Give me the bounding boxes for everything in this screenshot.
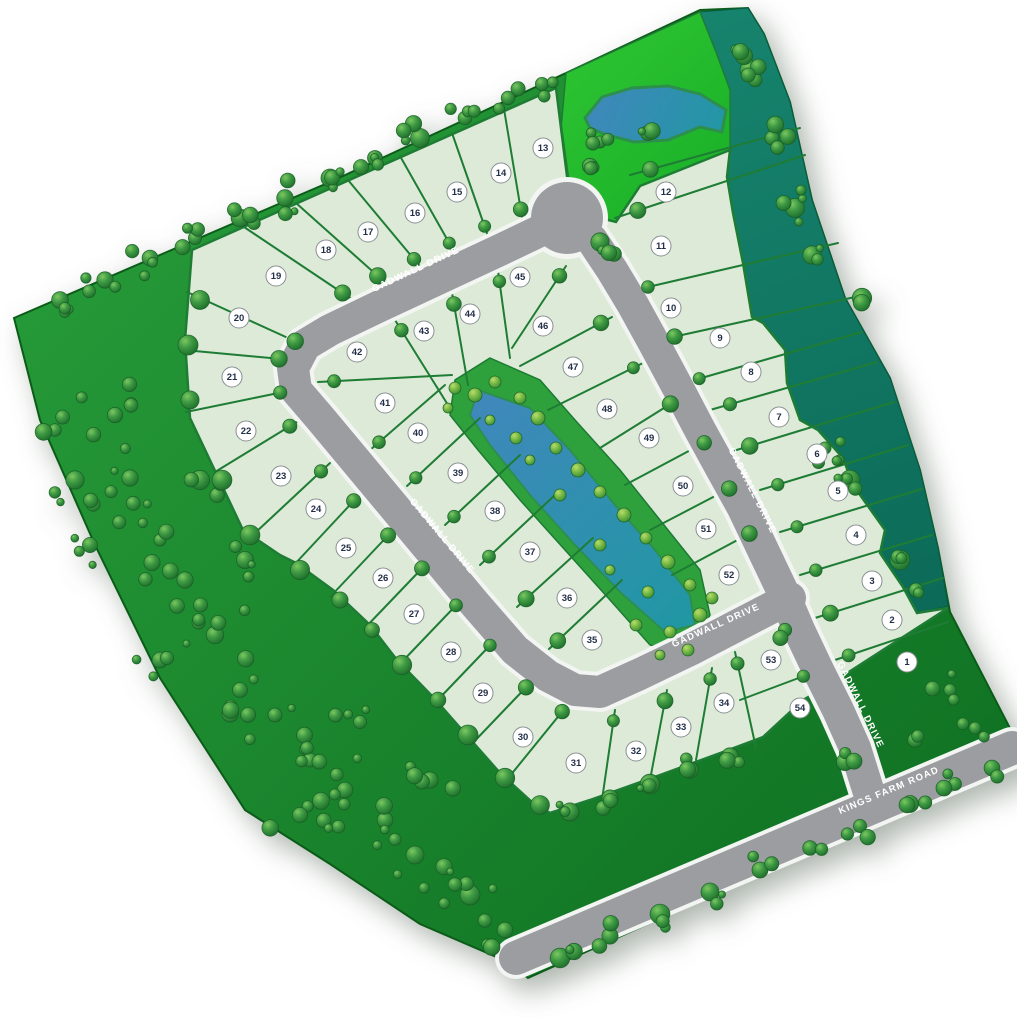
tree-icon (772, 478, 784, 490)
tree-icon (592, 939, 607, 954)
tree-icon (407, 768, 423, 784)
tree-icon (538, 90, 550, 102)
tree-icon (535, 77, 548, 90)
lot-number: 30 (518, 732, 529, 743)
lot-33-badge[interactable]: 33 (671, 717, 691, 737)
tree-icon (497, 922, 513, 938)
tree-icon (627, 362, 639, 374)
tree-icon (184, 472, 199, 487)
lot-25-badge[interactable]: 25 (336, 538, 356, 558)
tree-icon (637, 785, 644, 792)
tree-icon (643, 162, 659, 178)
tree-icon (448, 510, 461, 523)
tree-icon (853, 294, 870, 311)
lot-29-badge[interactable]: 29 (473, 683, 493, 703)
tree-icon (925, 681, 940, 696)
lot-4-badge[interactable]: 4 (846, 525, 866, 545)
tree-icon (376, 798, 393, 815)
lot-number: 25 (341, 543, 352, 554)
tree-icon (765, 857, 779, 871)
tree-icon (344, 710, 353, 719)
tree-icon (35, 424, 52, 441)
lot-16-badge[interactable]: 16 (405, 203, 425, 223)
tree-icon (329, 789, 340, 800)
tree-icon (140, 271, 150, 281)
tree-icon (328, 375, 341, 388)
tree-icon (245, 734, 256, 745)
lot-40-badge[interactable]: 40 (408, 423, 428, 443)
lot-number: 43 (419, 326, 430, 337)
tree-icon (556, 801, 563, 808)
tree-icon (630, 202, 646, 218)
lot-46-badge[interactable]: 46 (533, 316, 553, 336)
tree-icon (731, 657, 744, 670)
tree-icon (723, 398, 736, 411)
tree-icon (84, 493, 98, 507)
tree-icon (605, 565, 615, 575)
tree-icon (193, 598, 207, 612)
tree-icon (191, 291, 210, 310)
tree-icon (238, 651, 254, 667)
tree-icon (525, 455, 535, 465)
lot-number: 52 (724, 570, 735, 581)
tree-icon (373, 436, 386, 449)
tree-icon (162, 563, 178, 579)
tree-icon (227, 203, 241, 217)
lot-31-badge[interactable]: 31 (566, 753, 586, 773)
tree-icon (178, 335, 198, 355)
lot-53-badge[interactable]: 53 (761, 650, 781, 670)
tree-icon (336, 168, 344, 176)
tree-icon (812, 254, 824, 266)
tree-icon (741, 438, 758, 455)
lot-number: 10 (666, 303, 677, 314)
tree-icon (832, 456, 842, 466)
tree-icon (816, 245, 823, 252)
lot-number: 5 (835, 486, 841, 497)
tree-icon (810, 564, 823, 577)
tree-icon (458, 725, 478, 745)
lot-1-badge[interactable]: 1 (897, 652, 917, 672)
tree-icon (183, 640, 190, 647)
tree-icon (684, 579, 696, 591)
tree-icon (81, 273, 91, 283)
lot-32-badge[interactable]: 32 (626, 741, 646, 761)
tree-icon (110, 281, 121, 292)
tree-icon (262, 820, 279, 837)
tree-icon (249, 675, 258, 684)
tree-icon (489, 376, 501, 388)
tree-icon (353, 715, 366, 728)
tree-icon (706, 592, 718, 604)
tree-icon (83, 285, 96, 298)
lot-51-badge[interactable]: 51 (696, 519, 716, 539)
tree-icon (741, 68, 755, 82)
tree-icon (479, 220, 491, 232)
lot-2-badge[interactable]: 2 (882, 610, 902, 630)
tree-icon (89, 561, 96, 568)
lot-26-badge[interactable]: 26 (373, 568, 393, 588)
tree-icon (485, 415, 495, 425)
tree-icon (450, 599, 463, 612)
tree-icon (335, 285, 351, 301)
tree-icon (919, 796, 932, 809)
tree-icon (732, 44, 748, 60)
tree-icon (796, 185, 806, 195)
tree-icon (313, 792, 330, 809)
tree-icon (297, 727, 313, 743)
tree-icon (230, 541, 242, 553)
tree-icon (555, 704, 570, 719)
tree-icon (365, 623, 380, 638)
lot-47-badge[interactable]: 47 (563, 357, 583, 377)
tree-icon (642, 586, 654, 598)
tree-icon (380, 825, 389, 834)
lot-number: 8 (748, 367, 753, 378)
tree-icon (181, 391, 199, 409)
tree-icon (571, 463, 585, 477)
lot-43-badge[interactable]: 43 (414, 321, 434, 341)
tree-icon (76, 392, 87, 403)
tree-icon (274, 386, 287, 399)
lot-52-badge[interactable]: 52 (719, 565, 739, 585)
tree-icon (395, 323, 409, 337)
lot-38-badge[interactable]: 38 (485, 501, 505, 521)
tree-icon (711, 897, 724, 910)
lot-number: 14 (496, 168, 507, 179)
lot-number: 26 (378, 573, 389, 584)
tree-icon (280, 173, 295, 188)
lot-21-badge[interactable]: 21 (222, 367, 242, 387)
lot-number: 12 (661, 187, 672, 198)
tree-icon (329, 708, 343, 722)
tree-icon (126, 496, 140, 510)
tree-icon (132, 655, 141, 664)
lot-39-badge[interactable]: 39 (448, 463, 468, 483)
lot-12-badge[interactable]: 12 (656, 182, 676, 202)
tree-icon (594, 486, 606, 498)
tree-icon (483, 550, 496, 563)
tree-icon (443, 403, 453, 413)
lot-number: 53 (766, 655, 777, 666)
tree-icon (693, 373, 705, 385)
lot-number: 34 (719, 698, 730, 709)
lot-14-badge[interactable]: 14 (491, 163, 511, 183)
lot-number: 48 (602, 404, 613, 415)
tree-icon (122, 470, 138, 486)
tree-icon (495, 768, 514, 787)
tree-icon (679, 761, 695, 777)
tree-icon (719, 752, 735, 768)
lot-number: 39 (453, 468, 464, 479)
tree-icon (513, 202, 528, 217)
lot-number: 40 (413, 428, 424, 439)
tree-icon (392, 655, 411, 674)
tree-icon (222, 702, 239, 719)
tree-icon (552, 269, 567, 284)
tree-icon (593, 315, 609, 331)
tree-icon (742, 526, 758, 542)
tree-icon (655, 650, 665, 660)
tree-icon (239, 605, 250, 616)
tree-icon (278, 207, 292, 221)
lot-number: 42 (352, 347, 363, 358)
tree-icon (449, 382, 461, 394)
site-plan-page: 1234567891011121314151617181920212223242… (0, 0, 1017, 1017)
lot-49-badge[interactable]: 49 (639, 428, 659, 448)
tree-icon (86, 427, 101, 442)
tree-icon (718, 891, 725, 898)
tree-icon (240, 525, 260, 545)
tree-icon (243, 571, 254, 582)
tree-icon (468, 388, 482, 402)
lot-27-badge[interactable]: 27 (404, 604, 424, 624)
tree-icon (531, 411, 545, 425)
tree-icon (332, 592, 348, 608)
tree-icon (603, 793, 617, 807)
tree-icon (721, 481, 737, 497)
tree-icon (913, 588, 923, 598)
tree-icon (148, 257, 158, 267)
lot-22-badge[interactable]: 22 (236, 421, 256, 441)
site-plan-map: 1234567891011121314151617181920212223242… (0, 0, 1017, 1017)
tree-icon (287, 333, 304, 350)
tree-icon (493, 275, 506, 288)
tree-icon (662, 396, 678, 412)
lot-number: 46 (538, 321, 549, 332)
tree-icon (49, 487, 61, 499)
tree-icon (406, 846, 424, 864)
tree-icon (704, 673, 717, 686)
tree-icon (330, 768, 343, 781)
lot-30-badge[interactable]: 30 (513, 727, 533, 747)
tree-icon (661, 555, 675, 569)
tree-icon (846, 753, 862, 769)
lot-number: 1 (904, 657, 910, 668)
tree-icon (271, 351, 288, 368)
tree-icon (445, 781, 461, 797)
tree-icon (241, 707, 256, 722)
lot-number: 36 (562, 593, 573, 604)
tree-icon (896, 553, 907, 564)
tree-icon (841, 828, 853, 840)
tree-icon (324, 824, 333, 833)
tree-icon (644, 123, 661, 140)
tree-icon (396, 123, 411, 138)
lot-19-badge[interactable]: 19 (266, 266, 286, 286)
lot-28-badge[interactable]: 28 (441, 642, 461, 662)
lot-number: 41 (380, 398, 391, 409)
tree-icon (314, 465, 327, 478)
tree-icon (107, 407, 122, 422)
lot-number: 29 (478, 688, 489, 699)
tree-icon (697, 436, 712, 451)
lot-number: 50 (678, 481, 689, 492)
lot-35-badge[interactable]: 35 (582, 630, 602, 650)
tree-icon (594, 539, 606, 551)
tree-icon (531, 796, 550, 815)
lot-number: 3 (869, 576, 874, 587)
lot-34-badge[interactable]: 34 (714, 693, 734, 713)
lot-20-badge[interactable]: 20 (229, 308, 249, 328)
lot-number: 49 (644, 433, 655, 444)
tree-icon (290, 560, 309, 579)
lot-number: 44 (465, 309, 476, 320)
lot-23-badge[interactable]: 23 (271, 466, 291, 486)
tree-icon (979, 731, 990, 742)
tree-icon (554, 489, 566, 501)
tree-icon (177, 572, 193, 588)
lot-44-badge[interactable]: 44 (460, 304, 480, 324)
tree-icon (139, 573, 153, 587)
tree-icon (430, 692, 446, 708)
tree-icon (373, 841, 382, 850)
tree-icon (566, 945, 574, 953)
tree-icon (124, 399, 138, 413)
lot-7-badge[interactable]: 7 (769, 407, 789, 427)
lot-number: 54 (795, 703, 806, 714)
lot-number: 7 (776, 412, 781, 423)
lot-number: 37 (525, 547, 536, 558)
lot-number: 23 (276, 471, 287, 482)
lot-48-badge[interactable]: 48 (597, 399, 617, 419)
tree-icon (767, 116, 784, 133)
tree-icon (656, 915, 669, 928)
tree-icon (550, 633, 566, 649)
tree-icon (59, 302, 71, 314)
tree-icon (489, 884, 497, 892)
lot-11-badge[interactable]: 11 (651, 236, 671, 256)
tree-icon (353, 754, 362, 763)
tree-icon (138, 518, 148, 528)
tree-icon (948, 670, 956, 678)
lot-number: 24 (311, 504, 322, 515)
lot-number: 45 (515, 272, 526, 283)
tree-icon (393, 870, 402, 879)
tree-icon (899, 797, 915, 813)
tree-icon (642, 281, 655, 294)
tree-icon (547, 77, 558, 88)
lot-41-badge[interactable]: 41 (375, 393, 395, 413)
lot-37-badge[interactable]: 37 (520, 542, 540, 562)
tree-icon (780, 129, 796, 145)
tree-icon (447, 868, 454, 875)
tree-icon (483, 939, 500, 956)
lot-54-badge[interactable]: 54 (790, 698, 810, 718)
tree-icon (584, 162, 597, 175)
tree-icon (912, 730, 924, 742)
tree-icon (301, 742, 314, 755)
tree-icon (484, 639, 497, 652)
tree-icon (586, 136, 600, 150)
lot-5-badge[interactable]: 5 (828, 481, 848, 501)
lot-13-badge[interactable]: 13 (533, 138, 553, 158)
lot-17-badge[interactable]: 17 (358, 222, 378, 242)
tree-icon (105, 486, 117, 498)
lot-number: 4 (853, 530, 859, 541)
tree-icon (518, 680, 533, 695)
lot-number: 28 (446, 647, 457, 658)
tree-icon (511, 82, 525, 96)
tree-icon (347, 494, 361, 508)
tree-icon (312, 754, 327, 769)
lot-number: 2 (889, 615, 894, 626)
lot-10-badge[interactable]: 10 (661, 298, 681, 318)
tree-icon (836, 437, 846, 447)
tree-icon (415, 561, 430, 576)
tree-icon (193, 614, 205, 626)
tree-icon (292, 807, 307, 822)
lot-15-badge[interactable]: 15 (447, 182, 467, 202)
lot-number: 31 (571, 758, 582, 769)
tree-icon (445, 103, 456, 114)
lot-9-badge[interactable]: 9 (710, 328, 730, 348)
tree-icon (122, 377, 136, 391)
lot-number: 51 (701, 524, 712, 535)
tree-icon (797, 670, 809, 682)
tree-icon (773, 630, 788, 645)
tree-icon (795, 218, 803, 226)
lot-36-badge[interactable]: 36 (557, 588, 577, 608)
tree-icon (242, 207, 258, 223)
lot-number: 35 (587, 635, 598, 646)
tree-icon (657, 693, 673, 709)
tree-icon (447, 297, 462, 312)
lot-8-badge[interactable]: 8 (741, 362, 761, 382)
tree-icon (630, 619, 642, 631)
tree-icon (248, 561, 255, 568)
tree-icon (550, 442, 562, 454)
lot-45-badge[interactable]: 45 (510, 267, 530, 287)
tree-icon (640, 532, 652, 544)
tree-icon (803, 841, 818, 856)
tree-icon (277, 190, 294, 207)
parcel: 1234567891011121314151617181920212223242… (14, 8, 1016, 978)
tree-icon (126, 244, 139, 257)
lot-number: 47 (568, 362, 579, 373)
lot-number: 33 (676, 722, 687, 733)
lot-number: 21 (227, 372, 238, 383)
tree-icon (268, 708, 282, 722)
tree-icon (212, 470, 232, 490)
lot-3-badge[interactable]: 3 (862, 571, 882, 591)
tree-icon (514, 392, 526, 404)
tree-icon (381, 528, 396, 543)
tree-icon (74, 546, 84, 556)
lot-6-badge[interactable]: 6 (807, 444, 827, 464)
tree-icon (57, 498, 65, 506)
lot-number: 15 (452, 187, 463, 198)
lot-50-badge[interactable]: 50 (673, 476, 693, 496)
tree-icon (332, 820, 345, 833)
tree-icon (448, 878, 462, 892)
tree-icon (113, 516, 126, 529)
tree-icon (353, 160, 368, 175)
lot-18-badge[interactable]: 18 (316, 240, 336, 260)
tree-icon (111, 467, 118, 474)
tree-icon (642, 779, 656, 793)
tree-icon (478, 914, 491, 927)
tree-icon (518, 591, 534, 607)
lot-24-badge[interactable]: 24 (306, 499, 326, 519)
tree-icon (815, 843, 827, 855)
tree-icon (439, 898, 450, 909)
lot-42-badge[interactable]: 42 (347, 342, 367, 362)
tree-icon (607, 715, 619, 727)
tree-icon (860, 829, 875, 844)
lot-number: 32 (631, 746, 642, 757)
tree-icon (56, 410, 70, 424)
